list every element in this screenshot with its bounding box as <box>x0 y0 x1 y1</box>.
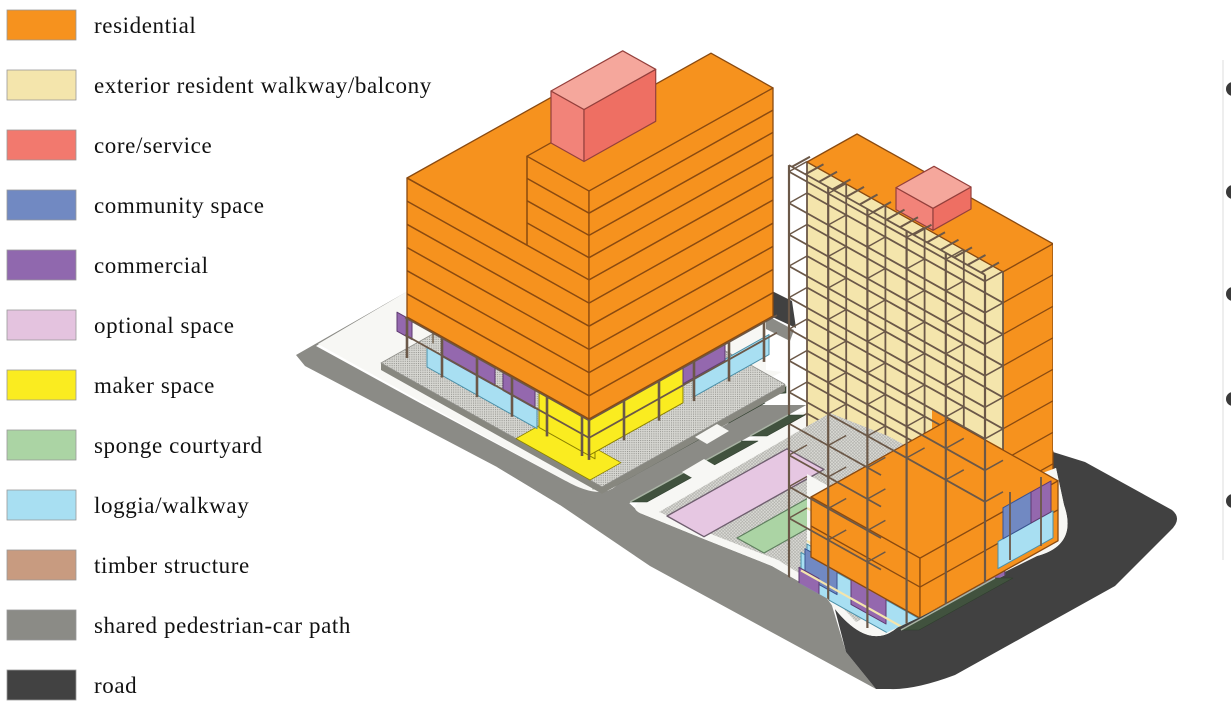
svg-text:road: road <box>94 673 137 698</box>
svg-text:community space: community space <box>94 193 265 218</box>
svg-text:loggia/walkway: loggia/walkway <box>94 493 249 518</box>
svg-text:core/service: core/service <box>94 133 212 158</box>
svg-text:residential: residential <box>94 13 196 38</box>
svg-text:optional space: optional space <box>94 313 235 338</box>
svg-text:sponge courtyard: sponge courtyard <box>94 433 263 458</box>
svg-text:commercial: commercial <box>94 253 209 278</box>
svg-text:exterior resident walkway/balc: exterior resident walkway/balcony <box>94 73 432 98</box>
svg-text:shared pedestrian-car path: shared pedestrian-car path <box>94 613 351 638</box>
svg-text:timber structure: timber structure <box>94 553 250 578</box>
svg-text:maker space: maker space <box>94 373 215 398</box>
